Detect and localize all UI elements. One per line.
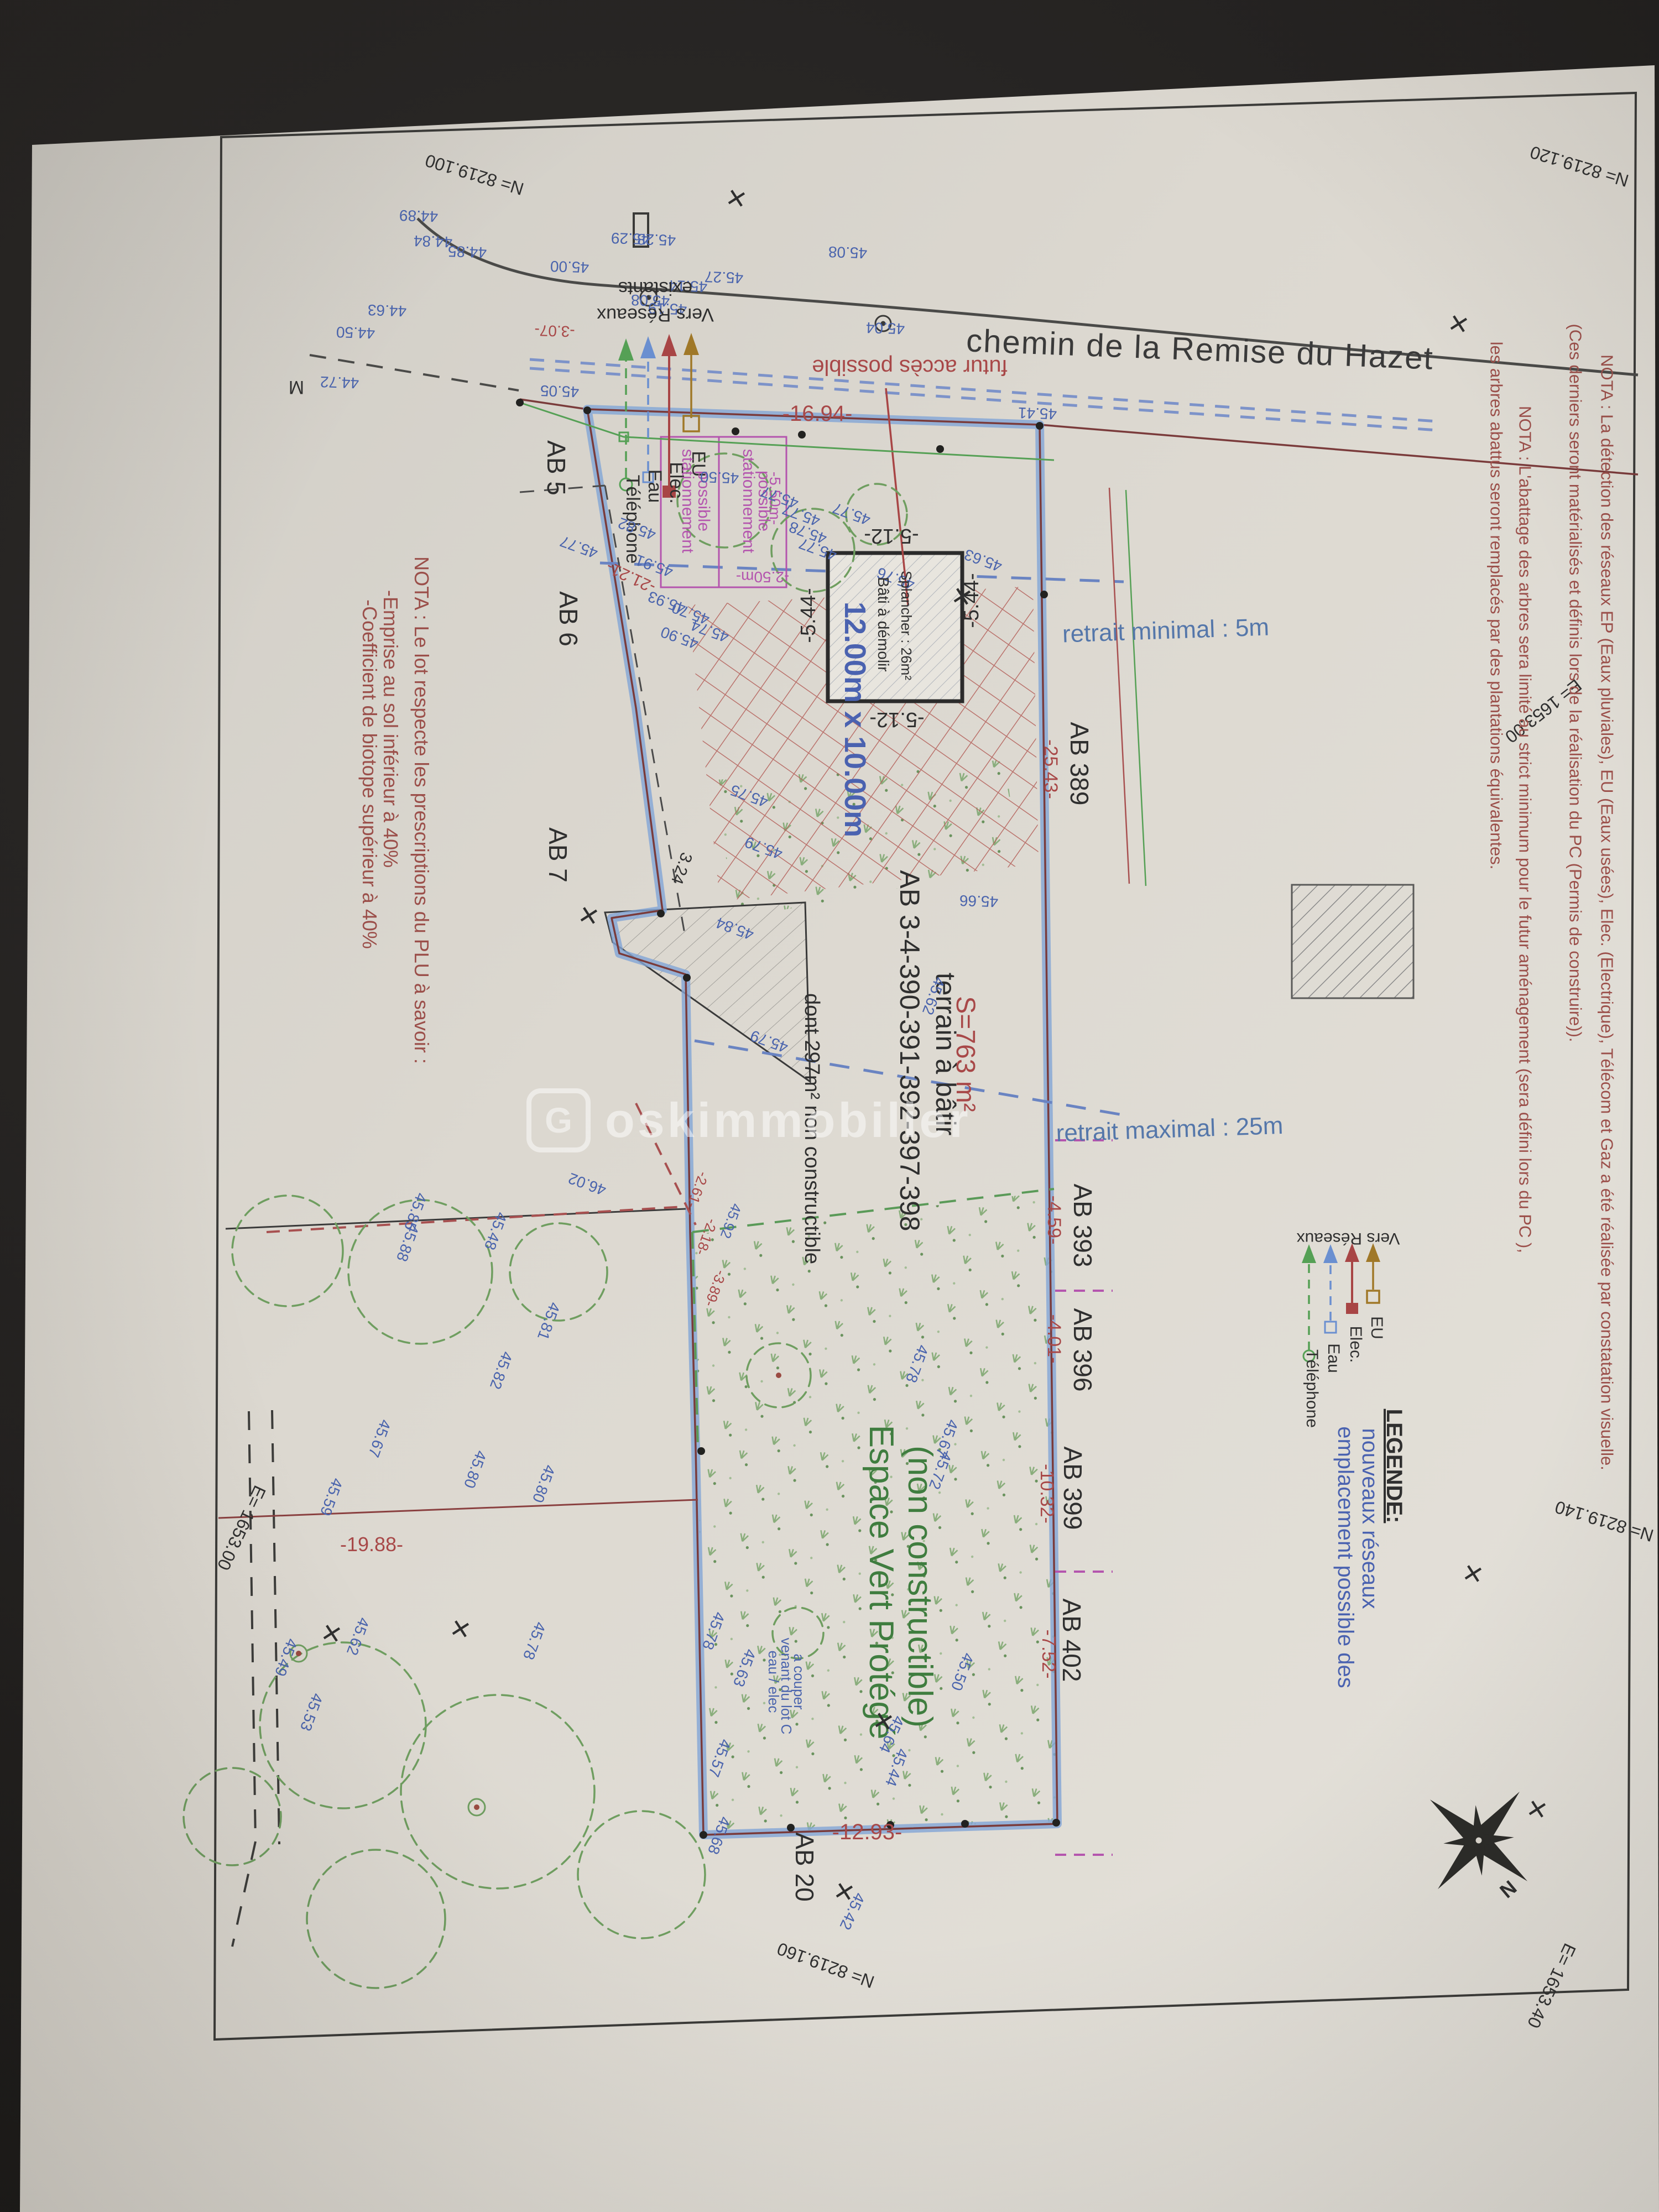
plan-label: -2.50m- (736, 569, 789, 585)
plan-label: 44.50 (336, 324, 375, 341)
plan-label: a couper (792, 1653, 806, 1709)
plan-label: 45.62 (344, 1615, 372, 1657)
plan-label: Vers Réseaux (1297, 1230, 1400, 1246)
plan-label: 45.53 (298, 1691, 325, 1733)
plan-label: 45.79 (743, 834, 784, 862)
survey-cross-mark: × (576, 895, 603, 936)
plan-label: Eau (645, 469, 664, 503)
plan-label: emplacement possible des (1334, 1426, 1357, 1688)
plan-label: LEGENDE: (1383, 1409, 1405, 1524)
plan-label: S=763 m² (952, 996, 978, 1112)
plan-label: 45.63 (962, 546, 1004, 574)
plan-label: 45.48 (482, 1210, 509, 1251)
plan-label: Eau (1325, 1343, 1342, 1373)
plan-label: AB 6 (556, 591, 581, 646)
plan-label: 3.24 (668, 850, 695, 886)
plan-label: 45.05 (540, 383, 579, 399)
note-plu-line1: NOTA : Le lot respecte les prescriptions… (411, 556, 431, 1064)
survey-cross-mark: × (1524, 1788, 1551, 1830)
plan-label: -5.12- (869, 709, 924, 730)
plan-label: 45.68 (705, 1814, 733, 1856)
plan-label: stationnement (740, 449, 757, 553)
plan-label: 45.27 (704, 269, 743, 285)
plan-label: 45.50 (948, 1651, 976, 1692)
plan-label: 45.00 (550, 258, 589, 275)
plan-label: 45.80 (530, 1463, 557, 1504)
plan-label: dont 297m² non constructible (801, 993, 822, 1264)
note-plu-line3: -Coefficient de biotope supérieur à 40% (359, 599, 379, 949)
survey-cross-mark: × (447, 1608, 474, 1650)
plan-label: 45.04 (865, 320, 905, 336)
note-plu-line2: -Emprise au sol inférieur à 40% (380, 590, 400, 868)
plan-label: N= 8219.120 (1528, 143, 1630, 190)
plan-label: 45.75 (728, 782, 770, 810)
plan-label: 45.28 (637, 231, 676, 248)
plan-label: stationnement (679, 449, 696, 553)
photo-of-survey-plan: { "title": {"text": "chemin de la Remise… (0, 0, 1659, 2212)
plan-label: 45.85 (401, 1191, 429, 1232)
plan-label: -4.59- (1045, 1196, 1063, 1245)
plan-label: 45.50 (700, 469, 739, 486)
plan-label: 45.49 (272, 1636, 300, 1678)
plan-label: 45.81 (535, 1300, 562, 1342)
plan-label: Espace Vert Protégé (864, 1425, 898, 1740)
plan-label: nouveaux réseaux (1359, 1428, 1381, 1609)
plan-label: -10.32- (1037, 1464, 1056, 1524)
plan-label: existants (618, 279, 692, 298)
plan-label: 45.84 (714, 915, 755, 942)
survey-cross-mark: × (319, 1613, 346, 1654)
plan-label: AB 3-4-390-391-392-397-398 (896, 870, 924, 1231)
note-networks-line1: NOTA : La détection des réseaux EP (Eaux… (1599, 354, 1616, 1470)
plan-label: -7.52- (1039, 1630, 1058, 1679)
plan-label: AB 389 (1067, 722, 1092, 806)
plan-label: E= 1653.40 (1525, 1941, 1579, 2031)
plan-label: 45.66 (959, 893, 998, 909)
plan-label: N= 8219.100 (423, 152, 525, 198)
plan-label: AB 396 (1070, 1308, 1095, 1392)
plan-label: 45.78 (520, 1620, 548, 1661)
plan-label: 12.00m x 10.00m (840, 602, 870, 837)
plan-label: -12.93- (832, 1821, 902, 1843)
plan-label: 45.78 (903, 1343, 931, 1384)
plan-label: 45.57 (706, 1737, 733, 1778)
plan-label: AB 7 (545, 827, 571, 883)
plan-label: -5.44- (798, 588, 819, 643)
plan-label: 45.77 (558, 533, 599, 561)
plan-label: AB 393 (1070, 1184, 1095, 1267)
plan-label: -4.01- (1045, 1314, 1063, 1364)
plan-label: 45.63 (731, 1647, 758, 1688)
plan-label: Splancher : 26m² (899, 571, 914, 680)
plan-label: 44.85 (447, 243, 487, 260)
plan-label: 45.78 (700, 1610, 727, 1651)
plan-label: -25.43- (1041, 739, 1060, 799)
note-trees-line1: NOTA : L'abattage des arbres sera limité… (1517, 406, 1534, 1253)
plan-label: -3.89- (702, 1269, 729, 1309)
plan-label: 45.80 (461, 1448, 489, 1490)
plan-label: 44.72 (320, 374, 359, 390)
plan-label: E= 1653.00 (215, 1483, 269, 1573)
plan-label: Elec. (1347, 1326, 1364, 1363)
plan-label: N= 8219.140 (1553, 1498, 1655, 1545)
plan-label: 44.89 (399, 207, 438, 224)
plan-label: 45.77 (831, 500, 872, 528)
plan-label: -16.94- (782, 403, 853, 425)
plan-label: 45.67 (933, 1417, 961, 1459)
survey-cross-mark: × (1446, 303, 1473, 345)
plan-label: 45.82 (487, 1349, 515, 1391)
note-networks-line2: (Ces derniers seront matérialisés et déf… (1567, 324, 1584, 1042)
plan-label: 44.63 (367, 302, 406, 319)
plan-labels-layer: 44.8944.8444.8545.0045.2945.2845.0845.08… (0, 0, 1659, 2212)
plan-label: 45.67 (366, 1417, 393, 1459)
plan-label: -2.18- (693, 1217, 720, 1258)
plan-label: AB 20 (792, 1832, 817, 1901)
plan-label: Bâti à démolir (875, 577, 891, 671)
plan-label: 45.59 (317, 1476, 345, 1517)
plan-label: 45.41 (1018, 405, 1057, 421)
survey-cross-mark: × (723, 178, 750, 219)
plan-label: -3.07- (534, 322, 575, 340)
plan-label: -2.61- (685, 1170, 711, 1211)
plan-label: -5.12- (864, 525, 919, 546)
plan-label: AB 402 (1059, 1599, 1084, 1682)
plan-label: Vers Réseaux (597, 305, 714, 324)
plan-label: retrait minimal : 5m (1062, 615, 1269, 646)
plan-label: 45.08 (828, 244, 867, 260)
plan-label: 45.79 (748, 1027, 790, 1055)
plan-label: -19.88- (340, 1535, 403, 1554)
plan-label: N= 8219.160 (775, 1939, 877, 1991)
plan-label: 44.84 (413, 233, 452, 249)
note-trees-line2: les arbres abattus seront remplacés par … (1488, 342, 1505, 870)
survey-cross-mark: × (1460, 1553, 1487, 1594)
scene: 44.8944.8444.8545.0045.2945.2845.0845.08… (0, 0, 1659, 2212)
plan-label: N (1496, 1877, 1520, 1901)
plan-label: M (289, 378, 304, 397)
plan-label: Téléphone (1303, 1349, 1320, 1428)
plan-label: 46.02 (566, 1170, 608, 1198)
plan-label: retrait maximal : 25m (1056, 1114, 1284, 1146)
plan-label: EU (1368, 1316, 1385, 1339)
plan-label: AB 399 (1060, 1447, 1086, 1530)
plan-label: AB 5 (544, 440, 569, 495)
plan-label: 45.92 (718, 1202, 744, 1240)
